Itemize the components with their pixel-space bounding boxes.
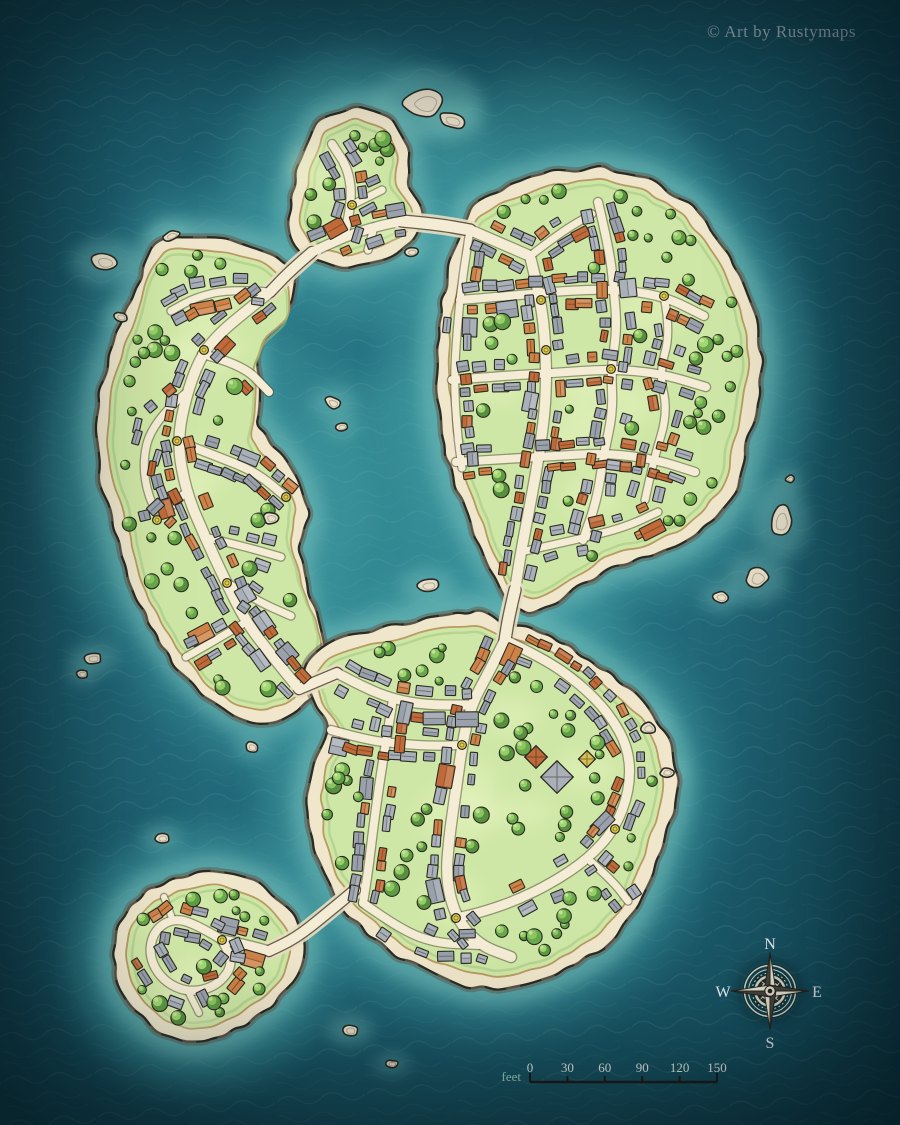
map-canvas: N E S W feet 0306090120150 © Art by Rust… xyxy=(0,0,900,1125)
island-town-map: N E S W feet 0306090120150 © Art by Rust… xyxy=(0,0,900,1125)
scale-unit-label: feet xyxy=(502,1069,522,1084)
compass-south-label: S xyxy=(766,1035,775,1052)
compass-east-label: E xyxy=(812,984,822,1001)
scale-tick-label: 60 xyxy=(598,1060,611,1075)
compass-west-label: W xyxy=(715,984,731,1001)
scale-tick-label: 120 xyxy=(670,1060,690,1075)
scale-tick-label: 150 xyxy=(707,1060,727,1075)
copyright-attribution: © Art by Rustymaps xyxy=(707,22,856,41)
scale-tick-label: 0 xyxy=(527,1060,534,1075)
compass-north-label: N xyxy=(764,936,776,953)
compass-hub-dot xyxy=(768,989,773,994)
scale-tick-label: 30 xyxy=(561,1060,574,1075)
scale-tick-label: 90 xyxy=(636,1060,649,1075)
